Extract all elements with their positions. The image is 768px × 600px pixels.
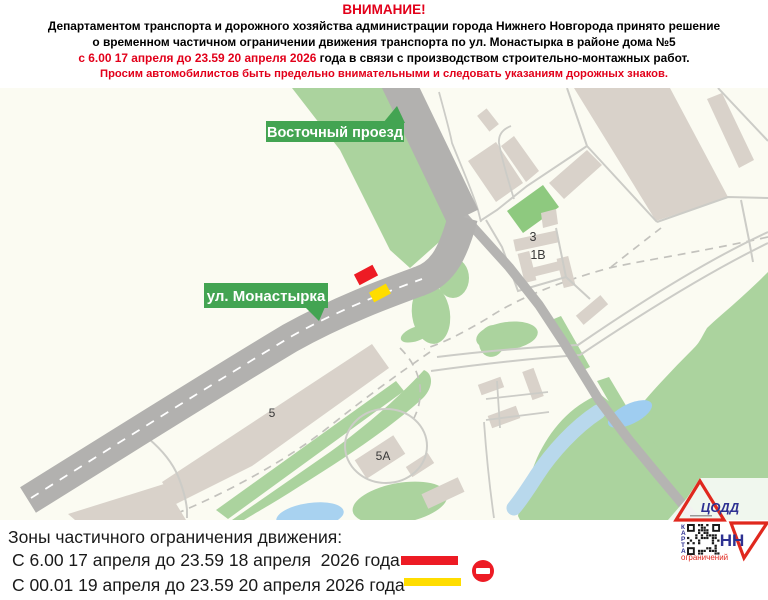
svg-text:3: 3 — [530, 230, 537, 244]
svg-text:НН: НН — [720, 531, 745, 550]
svg-text:1В: 1В — [530, 248, 545, 262]
svg-text:5А: 5А — [376, 449, 391, 463]
svg-text:ЦОДД: ЦОДД — [701, 500, 740, 515]
svg-text:5: 5 — [269, 406, 276, 420]
svg-text:Восточный проезд: Восточный проезд — [267, 125, 403, 141]
svg-text:ограничений: ограничений — [681, 553, 728, 562]
svg-text:ул. Монастырка: ул. Монастырка — [207, 288, 326, 305]
